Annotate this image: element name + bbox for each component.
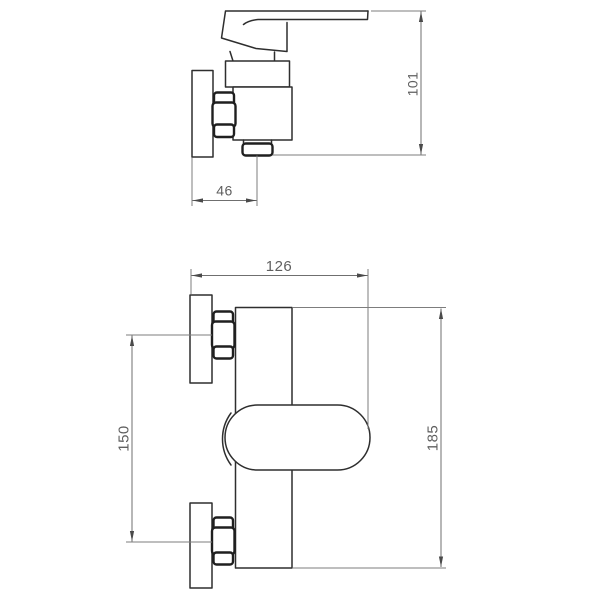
hex-nut-bottom bbox=[212, 518, 235, 565]
escutcheon-top bbox=[190, 295, 212, 383]
faucet-technical-drawing: 101 46 bbox=[0, 0, 600, 600]
dim-150-label: 150 bbox=[116, 425, 133, 452]
side-view: 101 46 bbox=[192, 11, 426, 206]
handle-grip bbox=[222, 11, 369, 52]
front-view: 126 185 150 bbox=[116, 258, 447, 588]
hex-nut-band bbox=[214, 125, 234, 138]
dim-46-label: 46 bbox=[216, 183, 233, 199]
hex-nut-band bbox=[214, 553, 234, 565]
escutcheon-bottom bbox=[190, 503, 212, 588]
hex-nut-band bbox=[214, 347, 234, 359]
control-oval-cover bbox=[225, 405, 370, 470]
technical-drawing-canvas: 101 46 bbox=[0, 0, 600, 600]
hex-nut-side bbox=[213, 93, 236, 138]
hex-nut-band bbox=[212, 322, 235, 349]
hex-nut-band bbox=[212, 528, 235, 555]
dim-101: 101 bbox=[273, 11, 427, 155]
valve-body-side bbox=[233, 87, 292, 140]
escutcheon-side bbox=[192, 71, 213, 158]
dim-185-label: 185 bbox=[425, 425, 442, 452]
dim-46: 46 bbox=[192, 156, 257, 207]
handle-neck bbox=[230, 52, 275, 62]
handle-lever bbox=[244, 11, 369, 25]
hex-nut-top bbox=[212, 312, 235, 359]
cartridge-collar bbox=[226, 61, 290, 87]
shower-hose-outlet bbox=[243, 144, 273, 156]
dim-126-label: 126 bbox=[266, 258, 293, 275]
dim-101-label: 101 bbox=[405, 72, 421, 97]
